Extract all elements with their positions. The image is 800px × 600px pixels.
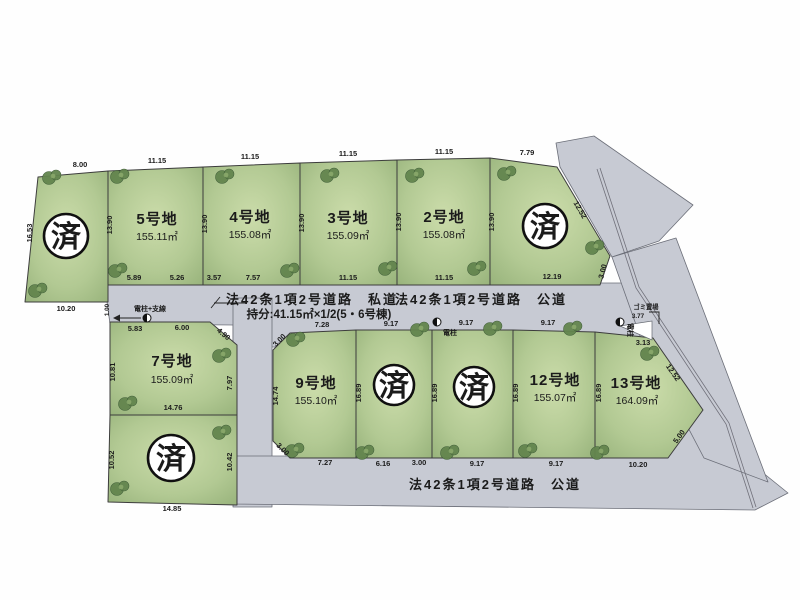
- measurement: 16.53: [25, 224, 34, 243]
- sold-stamp: 済: [523, 204, 567, 248]
- plot-area: 155.09㎡: [327, 230, 370, 242]
- plot-name: 12号地: [530, 371, 581, 389]
- measurement: 7.79: [520, 148, 535, 157]
- measurement: 5.26: [170, 273, 185, 282]
- measurement: 8.00: [73, 160, 88, 169]
- measurement: 14.85: [163, 504, 182, 513]
- measurement: 11.15: [339, 149, 357, 158]
- measurement: 10.52: [107, 451, 116, 470]
- sold-stamp-text: 済: [51, 220, 82, 255]
- measurement: 14.76: [164, 403, 183, 412]
- public-road-label-top: 法42条1項2号道路 公道: [395, 292, 567, 307]
- plot-name: 3号地: [327, 209, 368, 227]
- pole-label: 電柱: [626, 323, 635, 337]
- pole-with-wire-label: 電柱+支線: [134, 304, 166, 313]
- measurement: 10.81: [108, 363, 117, 382]
- measurement: 13.90: [394, 213, 403, 232]
- measurement: 3.57: [207, 273, 222, 282]
- measurement: 9.17: [470, 459, 485, 468]
- measurement: 16.89: [354, 384, 363, 403]
- plot-name: 2号地: [423, 208, 464, 226]
- private-road-share-label: 持分:41.15㎡×1/2(5・6号棟): [247, 307, 392, 321]
- measurement: 11.15: [435, 273, 453, 282]
- sold-stamp: 済: [148, 435, 194, 481]
- measurement: 9.17: [541, 318, 556, 327]
- utility-pole-icon: [616, 318, 624, 326]
- measurement: 5.89: [127, 273, 142, 282]
- measurement: 13.90: [200, 215, 209, 234]
- plot-area: 164.09㎡: [616, 395, 659, 407]
- sold-stamp-text: 済: [530, 210, 561, 245]
- measurement: 13.90: [487, 213, 496, 232]
- measurement: 13.90: [297, 214, 306, 233]
- utility-pole-icon: [433, 318, 441, 326]
- sold-stamp: 済: [374, 365, 414, 405]
- measurement: 12.19: [543, 272, 562, 281]
- measurement: 3.13: [636, 338, 651, 347]
- site-plan-map: 済 済 済 済 済: [0, 0, 800, 600]
- measurement: 10.20: [629, 460, 648, 469]
- measurement: 5.83: [128, 324, 143, 333]
- public-road-label-bottom: 法42条1項2号道路 公道: [409, 477, 581, 492]
- plot-area: 155.09㎡: [151, 374, 194, 386]
- measurement: 14.74: [271, 386, 280, 406]
- utility-pole-icon: [143, 314, 151, 322]
- measurement: 13.90: [105, 216, 114, 235]
- plot-name: 4号地: [229, 208, 270, 226]
- measurement: 3.00: [412, 458, 427, 467]
- site-plan-svg: 済 済 済 済 済: [0, 0, 800, 600]
- measurement: 11.15: [241, 152, 259, 161]
- measurement: 6.00: [175, 323, 190, 332]
- plot-name: 13号地: [611, 374, 662, 392]
- measurement: 10.20: [57, 304, 76, 313]
- measurement: 7.57: [246, 273, 261, 282]
- plot-area: 155.08㎡: [423, 229, 466, 241]
- plot-name: 7号地: [151, 352, 192, 370]
- sold-stamp: 済: [44, 214, 88, 258]
- sold-stamp-text: 済: [459, 371, 490, 406]
- sold-stamp: 済: [454, 367, 494, 407]
- measurement: 16.89: [511, 384, 520, 403]
- measurement: 16.89: [594, 384, 603, 403]
- garbage-dim-label: 3.77: [632, 313, 645, 320]
- private-road-label: 法42条1項2号道路 私道: [226, 292, 398, 307]
- measurement: 16.89: [430, 384, 439, 403]
- measurement: 7.28: [315, 320, 330, 329]
- measurement: 7.97: [225, 376, 234, 391]
- measurement: 7.27: [318, 458, 333, 467]
- plot-area: 155.11㎡: [136, 231, 178, 243]
- sold-stamp-text: 済: [156, 442, 187, 477]
- measurement: 6.16: [376, 459, 391, 468]
- plot-9-shape: [273, 330, 356, 458]
- sold-stamp-text: 済: [379, 369, 410, 404]
- pole-wire-dim-label: 1.00: [104, 303, 111, 316]
- plot-area: 155.07㎡: [534, 392, 577, 404]
- garbage-place-label: ゴミ置場: [633, 302, 659, 311]
- measurement: 10.42: [225, 453, 234, 472]
- plot-area: 155.08㎡: [229, 229, 272, 241]
- measurement: 11.15: [339, 273, 357, 282]
- plot-name: 5号地: [136, 210, 177, 228]
- pole-label: 電柱: [443, 328, 457, 337]
- measurement: 9.17: [459, 318, 474, 327]
- measurement: 11.15: [148, 156, 166, 165]
- measurement: 9.17: [549, 459, 564, 468]
- plot-name: 9号地: [295, 374, 336, 392]
- plot-area: 155.10㎡: [295, 395, 338, 407]
- measurement: 11.15: [435, 147, 453, 156]
